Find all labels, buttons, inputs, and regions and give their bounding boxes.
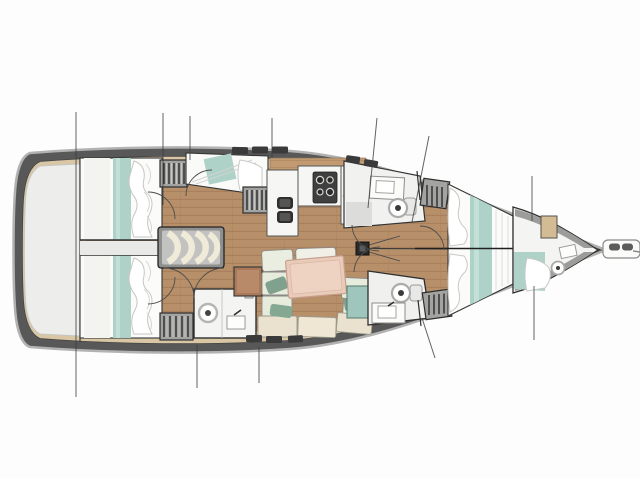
bowsprit-platform (603, 240, 640, 258)
louver-locker (160, 313, 193, 340)
berth-teal-hl (474, 197, 479, 303)
toilet-drain (398, 290, 404, 296)
forestay-stub (633, 251, 640, 252)
owner-cabin (415, 171, 513, 326)
yacht-layout-plan (0, 0, 640, 479)
berth-teal-hl (116, 158, 120, 240)
louver-locker (160, 160, 187, 187)
berth-teal-stripe (113, 255, 131, 338)
toilet-drain (395, 205, 401, 211)
burner-1 (316, 176, 323, 183)
anchor-roller-1 (609, 244, 620, 251)
berth-sheet-fold (84, 255, 110, 338)
stern-area (24, 158, 80, 342)
companionway (158, 227, 224, 268)
bow-cabinet (541, 216, 557, 238)
bowsprit (603, 240, 640, 258)
toilet-tank (410, 285, 422, 301)
berth-teal-stripe (470, 195, 492, 305)
bench-bottom-2 (298, 316, 337, 337)
berth-sheet-fold (84, 158, 110, 240)
vanity-sink (376, 181, 395, 194)
sink-counter (227, 316, 245, 329)
burner-2 (327, 177, 333, 183)
plan-canvas (0, 0, 640, 479)
berth-teal-stripe (113, 158, 131, 240)
crew-toilet-drain (556, 266, 560, 270)
aft-corridor (80, 241, 160, 255)
burner-4 (326, 188, 333, 195)
louver-locker-bottom (422, 289, 452, 319)
anchor-roller-2 (622, 244, 633, 251)
louver-locker-top (420, 178, 450, 208)
forepeak (513, 207, 598, 293)
stove (313, 172, 337, 203)
bench-bottom-1 (258, 316, 297, 337)
sink-1-inner (280, 199, 291, 207)
vanity-sink (378, 306, 396, 318)
chart-table-top (237, 270, 259, 293)
berth-teal-hl (116, 255, 120, 338)
rig-line (422, 318, 435, 358)
shower-stall (347, 286, 368, 318)
sink-2-inner (280, 213, 291, 221)
louver-locker (243, 187, 269, 213)
washbasin-drain (205, 310, 211, 316)
burner-3 (317, 189, 323, 195)
salon-table (285, 256, 346, 299)
stern-platform (24, 164, 80, 336)
